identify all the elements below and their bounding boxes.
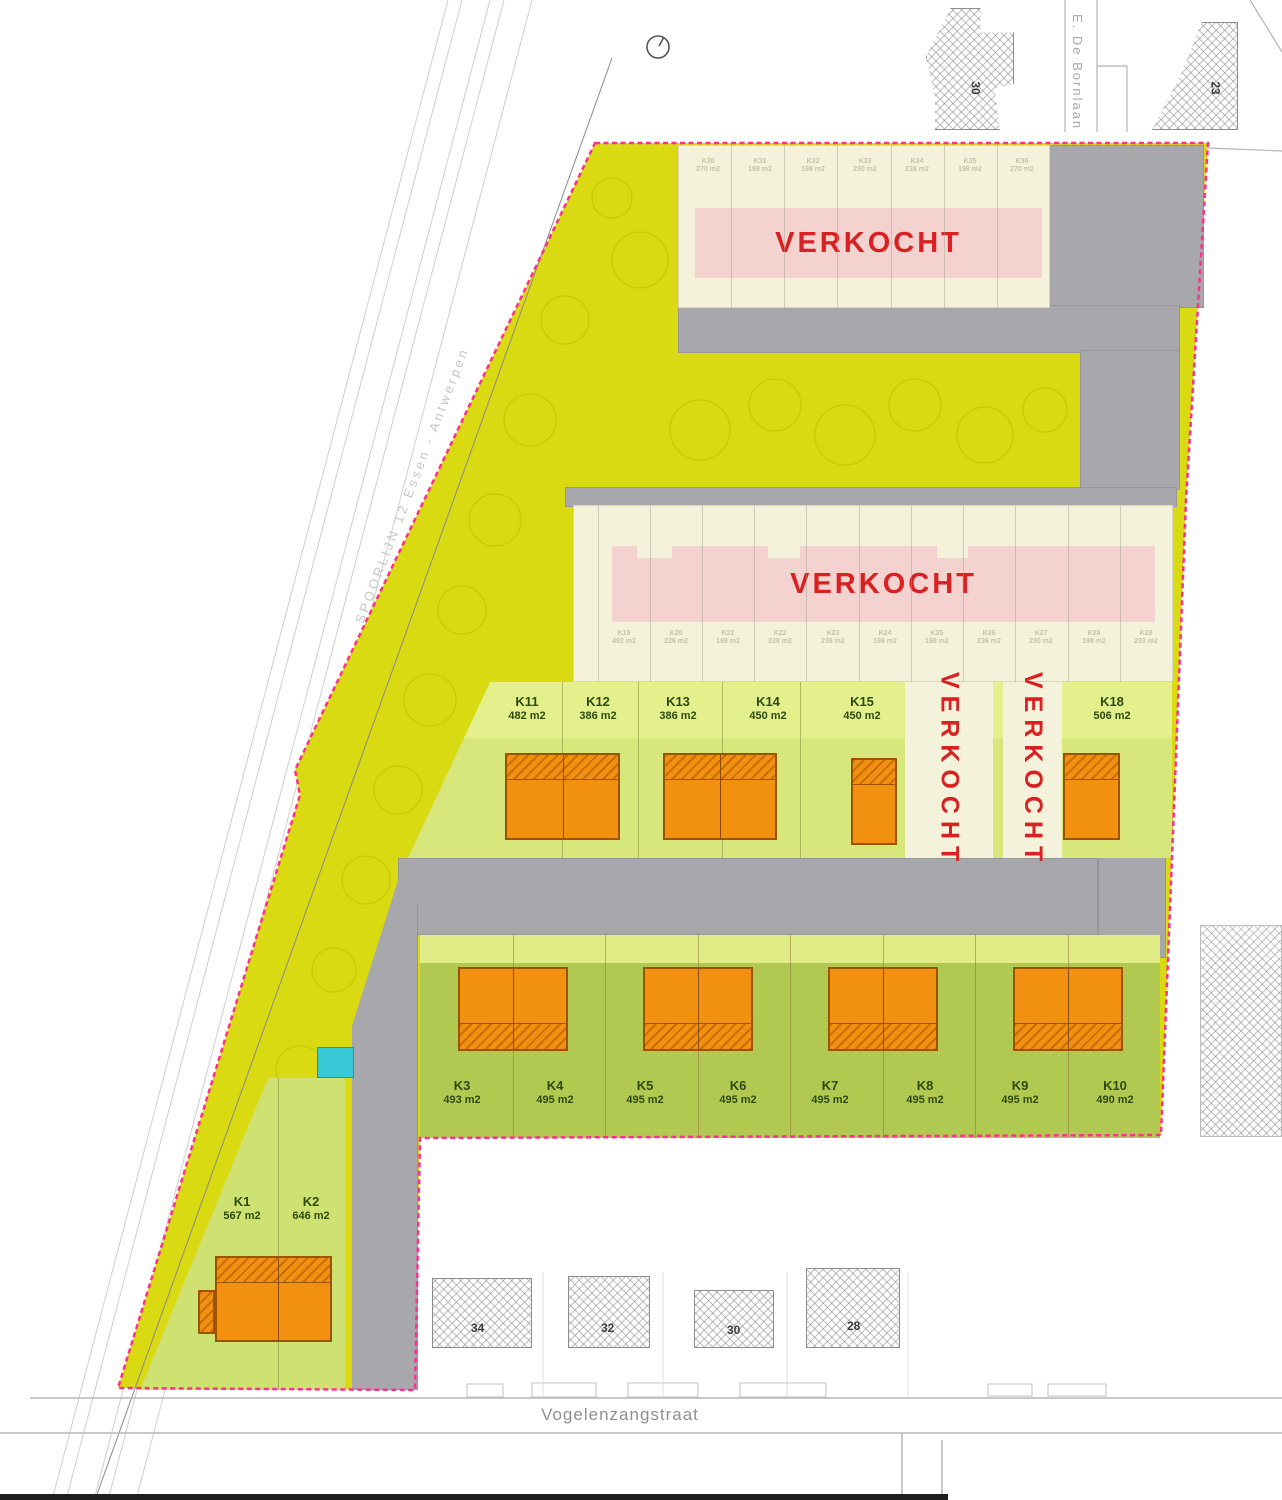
neighbor-house-23-top: 23 (1152, 22, 1238, 130)
house-number: 30 (969, 81, 983, 94)
sold-label-top: VERKOCHT (695, 208, 1042, 278)
lot-division-line (891, 145, 892, 308)
building-split-line (698, 969, 699, 1049)
building-hatch (217, 1258, 330, 1283)
lot-label-k29: K29233 m2 (1134, 630, 1158, 646)
building-k3-k4 (458, 967, 568, 1051)
lot-label-k5: K5495 m2 (626, 1078, 663, 1108)
railway-label: SPOORLIJN 12 Essen - Antwerpen (352, 345, 472, 625)
lot-division-line (650, 505, 651, 682)
building-k1-k2 (215, 1256, 332, 1342)
lot-row-k1-k2 (140, 1078, 345, 1390)
road-mid-band (565, 487, 1177, 507)
house-number: 32 (601, 1321, 614, 1335)
utility-cabin (317, 1047, 354, 1078)
building-split-line (513, 969, 514, 1049)
lot-label-k13: K13386 m2 (659, 694, 696, 724)
lot-label-k35: K35198 m2 (958, 158, 982, 174)
lot-division-line (911, 505, 912, 682)
lot-label-k30: K30270 m2 (696, 158, 720, 174)
lot-division-line (731, 145, 732, 308)
lot-division-line (975, 935, 976, 1138)
road-between-rows (398, 858, 1098, 935)
sold-label-k16: VERKOCHT (935, 672, 964, 868)
building-hatch (200, 1292, 213, 1332)
road-access-south (350, 858, 418, 1390)
lot-label-k18: K18506 m2 (1093, 694, 1130, 724)
lot-division-line (784, 145, 785, 308)
building-split-line (1068, 969, 1069, 1049)
lot-label-k7: K7495 m2 (811, 1078, 848, 1108)
lot-division-line (800, 682, 801, 858)
lot-label-k12: K12386 m2 (579, 694, 616, 724)
lot-label-k34: K34238 m2 (905, 158, 929, 174)
lot-division-line (1015, 505, 1016, 682)
lot-label-k19: K19492 m2 (612, 630, 636, 646)
lot-label-k9: K9495 m2 (1001, 1078, 1038, 1108)
neighbor-house-28: 28 (806, 1268, 900, 1348)
lot-label-k3: K3493 m2 (443, 1078, 480, 1108)
lot-division-line (702, 505, 703, 682)
sold-block-middle: VERKOCHT (573, 505, 1173, 682)
lot-label-k14: K14450 m2 (749, 694, 786, 724)
lot-label-k1: K1567 m2 (223, 1194, 260, 1224)
neighbor-house-32: 32 (568, 1276, 650, 1348)
lot-label-k6: K6495 m2 (719, 1078, 756, 1108)
lot-division-line (997, 145, 998, 308)
lot-division-line (1068, 505, 1069, 682)
lot-division-line (806, 505, 807, 682)
sold-lot-k16: VERKOCHT (905, 682, 993, 858)
house-number: 34 (471, 1321, 484, 1335)
lot-label-k11: K11482 m2 (508, 694, 545, 724)
lot-label-k28: K28198 m2 (1082, 630, 1106, 646)
lot-label-k23: K23236 m2 (821, 630, 845, 646)
building-k11-k12 (505, 753, 620, 840)
building-split-line (883, 969, 884, 1049)
sold-strip-middle: VERKOCHT (612, 546, 1155, 622)
neighbor-house-34: 34 (432, 1278, 532, 1348)
building-k15 (851, 758, 897, 845)
lot-division-line (790, 935, 791, 1138)
lot-label-k15: K15450 m2 (843, 694, 880, 724)
building-split-line (720, 755, 721, 838)
neighbor-house-30: 30 (694, 1290, 774, 1348)
neighbor-house-30-top: 30 (926, 8, 1014, 130)
house-number: 28 (847, 1319, 860, 1333)
driveway-marks (467, 1383, 1106, 1397)
sold-label-k17: VERKOCHT (1018, 672, 1047, 868)
lot-label-k20: K20226 m2 (664, 630, 688, 646)
lot-label-k10: K10490 m2 (1096, 1078, 1133, 1108)
lot-division-line (963, 505, 964, 682)
lot-label-k8: K8495 m2 (906, 1078, 943, 1108)
lot-division-line (754, 505, 755, 682)
building-hatch (853, 760, 895, 785)
lot-division-line (837, 145, 838, 308)
road-right-mid (1080, 350, 1180, 490)
lot-label-k26: K26236 m2 (977, 630, 1001, 646)
lot-division-line (944, 145, 945, 308)
road-top-band (678, 305, 1180, 353)
road-top-right (1048, 145, 1204, 308)
building-hatch (1065, 755, 1118, 780)
lot-label-k22: K22238 m2 (768, 630, 792, 646)
building-k13-k14 (663, 753, 777, 840)
building-k9-k10 (1013, 967, 1123, 1051)
lot-label-k2: K2646 m2 (292, 1194, 329, 1224)
building-k1-annex (198, 1290, 215, 1334)
plan-edge-bar (0, 1494, 948, 1500)
house-number: 30 (727, 1323, 740, 1337)
strip-notch (637, 546, 672, 558)
lot-division-line (278, 1078, 279, 1390)
lot-division-line (638, 682, 639, 858)
lot-label-k25: K25198 m2 (925, 630, 949, 646)
lot-label-k36: K36270 m2 (1010, 158, 1034, 174)
house-number: 23 (1209, 81, 1223, 94)
street-label-side: E. De Bornlaan (1070, 12, 1085, 132)
site-plan: VERKOCHT VERKOCHT VERKOCHT VERKOCHT (0, 0, 1282, 1500)
lot-division-line (605, 935, 606, 1138)
sold-strip-top: VERKOCHT (695, 208, 1042, 278)
building-k18 (1063, 753, 1120, 840)
lot-label-k27: K27230 m2 (1029, 630, 1053, 646)
building-split-line (563, 755, 564, 838)
lot-division-line (1120, 505, 1121, 682)
lot-division-line (859, 505, 860, 682)
lot-label-k24: K24198 m2 (873, 630, 897, 646)
lot-label-k33: K33230 m2 (853, 158, 877, 174)
neighbor-parcel-right (1200, 925, 1282, 1137)
building-k7-k8 (828, 967, 938, 1051)
lot-label-k31: K31198 m2 (748, 158, 772, 174)
street-label-bottom: Vogelenzangstraat (500, 1405, 740, 1425)
north-indicator-icon (647, 36, 669, 58)
lot-label-k4: K4495 m2 (536, 1078, 573, 1108)
strip-notch (768, 546, 800, 558)
sold-label-middle: VERKOCHT (612, 546, 1155, 622)
lot-division-line (598, 505, 599, 682)
sold-lot-k17: VERKOCHT (1003, 682, 1062, 858)
lot-label-k21: K21198 m2 (716, 630, 740, 646)
building-split-line (278, 1258, 279, 1340)
lot-label-k32: K32198 m2 (801, 158, 825, 174)
building-k5-k6 (643, 967, 753, 1051)
